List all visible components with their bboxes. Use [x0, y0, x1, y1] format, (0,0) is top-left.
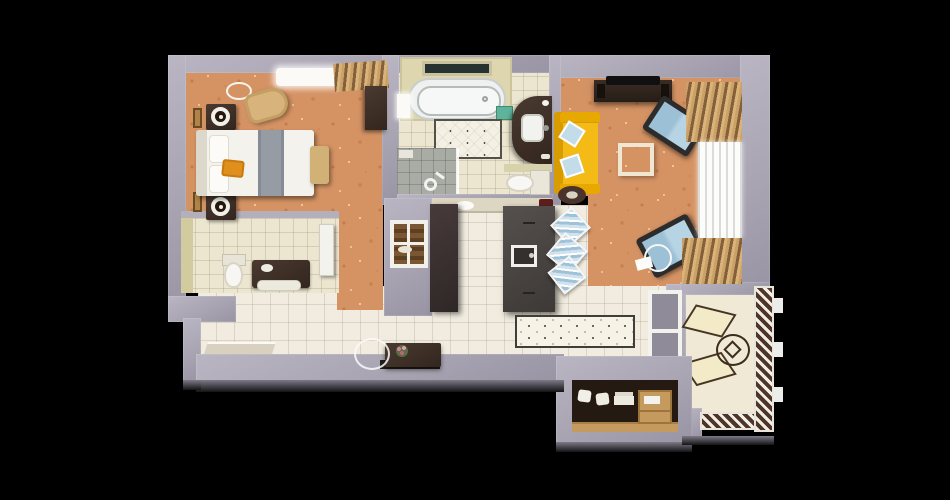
guest-wc-door	[319, 224, 334, 276]
guest-wc-vanity-dish	[261, 264, 273, 272]
living-window-curtain	[698, 142, 742, 238]
closet-wall-face	[556, 442, 692, 452]
bathtub	[408, 78, 506, 120]
vanity-faucet	[543, 125, 549, 131]
island-faucet	[529, 253, 534, 258]
shower-arm	[435, 171, 445, 179]
bottom-wall-face	[196, 380, 564, 392]
table-lamp-south	[211, 197, 230, 216]
hallway-mirror	[354, 338, 390, 370]
vanity-toiletry-a	[542, 100, 549, 106]
balcony-railing-south	[700, 412, 756, 430]
bathtub-drain	[482, 96, 488, 102]
vanity-toiletry-b	[541, 154, 550, 159]
balcony-table-cube	[723, 340, 741, 358]
living-window-blinds-bottom	[682, 238, 742, 284]
bathroom-vanity	[512, 96, 552, 164]
left-lower-wall-face	[183, 380, 201, 390]
bedroom-corridor-floor	[337, 214, 383, 310]
console-flowers	[396, 345, 408, 357]
baluster-1	[773, 298, 783, 313]
guest-wc-sink-tray	[257, 280, 301, 291]
balcony-face	[682, 436, 774, 445]
table-lamp-north	[211, 107, 230, 126]
lamp-finial-south	[219, 205, 223, 209]
counter-dish	[456, 201, 474, 210]
sofa	[554, 112, 600, 194]
closet-interior	[572, 380, 678, 432]
guest-wc-room	[181, 211, 339, 293]
living-window-blinds-top	[686, 82, 742, 142]
vanity-sink	[521, 114, 544, 142]
balcony-window-mullion	[652, 329, 678, 333]
hallway-console	[385, 343, 441, 367]
shower-head	[424, 178, 437, 191]
tv-speaker-left	[597, 84, 605, 98]
bed-runner	[258, 130, 284, 196]
wardrobe-pillow-2	[595, 392, 609, 405]
balcony-table	[716, 334, 750, 366]
guest-wc-west-wall	[181, 218, 193, 293]
balcony-railing-east	[754, 286, 774, 432]
shower-glass	[456, 148, 459, 194]
wardrobe-drawer-unit	[638, 390, 672, 424]
guest-wc-toilet-bowl	[224, 262, 243, 288]
bedroom-dresser	[365, 86, 387, 130]
island-handle-a	[523, 222, 535, 224]
shelf-plate	[398, 246, 412, 253]
tub-towel	[397, 94, 410, 118]
wardrobe-drawer-line	[640, 410, 670, 412]
kitchen-pass-through-window	[390, 220, 428, 268]
left-step-wall	[168, 296, 236, 322]
wardrobe-pillow-1	[577, 389, 592, 403]
baluster-2	[773, 342, 783, 357]
wall-frame-north	[193, 108, 202, 128]
shower-area	[397, 148, 457, 194]
bathroom-toilet-bowl	[506, 174, 534, 192]
kitchen-island	[503, 206, 555, 312]
baluster-3	[773, 387, 783, 402]
foot-bench	[310, 146, 329, 184]
island-handle-b	[523, 292, 535, 294]
wardrobe-linen-stack	[614, 396, 634, 405]
shower-shelf	[399, 150, 413, 158]
window-mullion-h	[394, 242, 424, 245]
hallway-runner-rug	[515, 315, 635, 348]
living-round-rug	[558, 186, 586, 204]
bed-headboard	[196, 130, 207, 196]
tub-window	[422, 61, 492, 76]
double-bed	[196, 130, 314, 196]
soap-box	[496, 106, 513, 120]
bedroom-curtain	[276, 68, 338, 86]
tv	[606, 76, 660, 85]
wardrobe-drawer-paper	[644, 396, 660, 404]
bathtub-basin	[417, 86, 501, 116]
bed-orange-towel	[221, 159, 245, 178]
floor-plan-stage	[0, 0, 950, 500]
right-wall	[740, 55, 770, 291]
top-wall-east	[555, 55, 768, 78]
lamp-finial-north	[219, 115, 223, 119]
coffee-table	[618, 143, 654, 176]
kitchen-tall-cabinet	[430, 204, 458, 312]
